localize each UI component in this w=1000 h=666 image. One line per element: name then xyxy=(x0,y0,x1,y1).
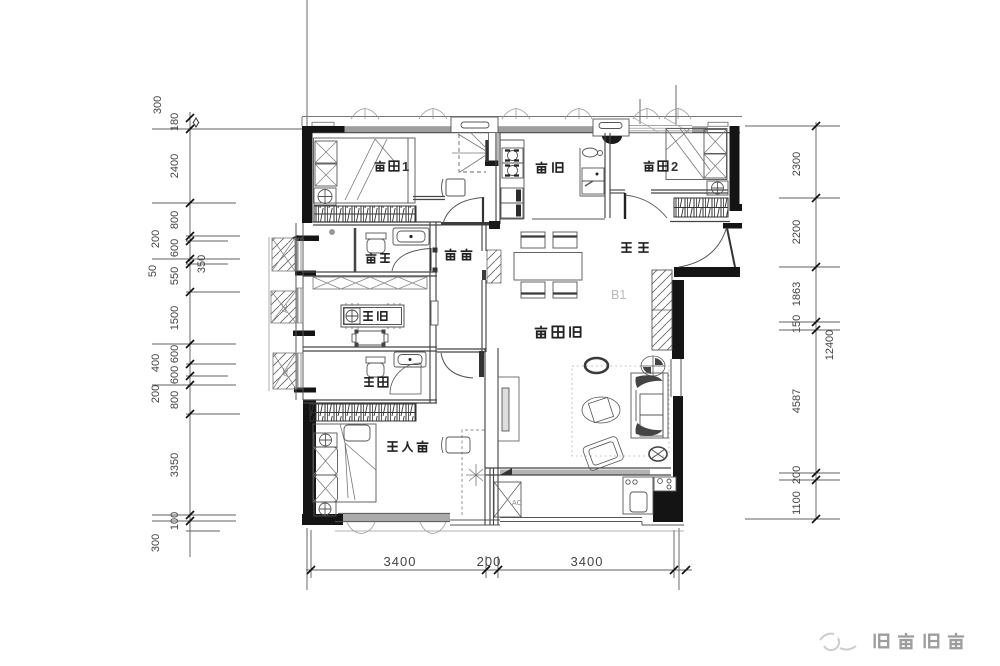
svg-text:3400: 3400 xyxy=(384,554,417,569)
svg-text:300: 300 xyxy=(150,534,162,552)
svg-text:800: 800 xyxy=(169,211,181,229)
svg-text:400: 400 xyxy=(150,354,162,372)
svg-text:B1: B1 xyxy=(611,288,626,302)
svg-text:1: 1 xyxy=(402,159,409,174)
svg-text:AC: AC xyxy=(512,500,522,507)
svg-text:4587: 4587 xyxy=(791,389,803,413)
svg-text:1500: 1500 xyxy=(169,306,181,330)
svg-text:800: 800 xyxy=(169,391,181,409)
svg-text:600: 600 xyxy=(169,345,181,363)
svg-text:3400: 3400 xyxy=(571,554,604,569)
svg-text:100: 100 xyxy=(169,512,181,530)
svg-text:550: 550 xyxy=(169,267,181,285)
svg-text:150: 150 xyxy=(791,315,803,333)
svg-text:50: 50 xyxy=(147,265,159,277)
svg-text:180: 180 xyxy=(169,113,181,131)
svg-text:2200: 2200 xyxy=(791,220,803,244)
svg-text:600: 600 xyxy=(169,239,181,257)
svg-text:2: 2 xyxy=(671,159,678,174)
svg-text:600: 600 xyxy=(169,366,181,384)
svg-text:200: 200 xyxy=(477,554,502,569)
svg-text:200: 200 xyxy=(791,466,803,484)
svg-text:AC: AC xyxy=(282,303,289,313)
svg-text:200: 200 xyxy=(150,230,162,248)
svg-text:200: 200 xyxy=(150,385,162,403)
svg-text:12400: 12400 xyxy=(824,330,836,361)
svg-text:350: 350 xyxy=(196,255,208,273)
svg-text:3350: 3350 xyxy=(169,453,181,477)
svg-text:300: 300 xyxy=(152,96,164,114)
svg-text:2400: 2400 xyxy=(169,154,181,178)
svg-text:AC: AC xyxy=(283,367,290,377)
svg-text:2300: 2300 xyxy=(791,152,803,176)
svg-text:1100: 1100 xyxy=(791,491,803,515)
svg-text:1863: 1863 xyxy=(791,282,803,306)
